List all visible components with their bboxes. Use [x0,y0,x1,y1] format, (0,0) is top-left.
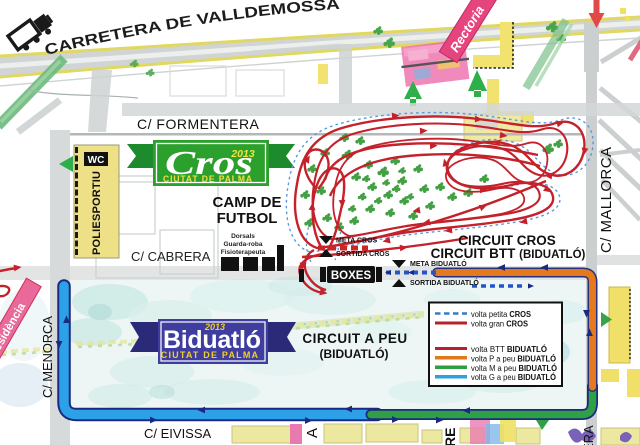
svg-text:WC: WC [88,155,105,166]
svg-text:SORTIDA BIDUATLÓ: SORTIDA BIDUATLÓ [410,278,479,287]
svg-text:C/ MALLORCA: C/ MALLORCA [598,147,615,253]
svg-text:META CROS: META CROS [336,238,378,245]
svg-text:RE: RE [442,428,458,445]
svg-text:C/ FORMENTERA: C/ FORMENTERA [137,116,260,132]
svg-text:volta G a peu BIDUATLÓ: volta G a peu BIDUATLÓ [471,373,556,382]
svg-text:CIUTAT DE PALMA: CIUTAT DE PALMA [161,350,260,360]
svg-text:FUTBOL: FUTBOL [217,210,278,227]
svg-text:Fisioterapeuta: Fisioterapeuta [221,249,266,256]
svg-text:C/ CABRERA: C/ CABRERA [131,249,211,264]
svg-text:CIRCUIT A PEU: CIRCUIT A PEU [302,331,407,346]
svg-text:POLIESPORTIU: POLIESPORTIU [91,171,103,255]
svg-text:volta M a peu BIDUATLÓ: volta M a peu BIDUATLÓ [471,364,557,373]
svg-text:(BIDUATLÓ): (BIDUATLÓ) [319,346,388,361]
svg-text:CIRCUIT BTT (BIDUATLÓ): CIRCUIT BTT (BIDUATLÓ) [431,246,586,261]
svg-text:C/ EIVISSA: C/ EIVISSA [144,426,212,441]
svg-text:volta BTT BIDUATLÓ: volta BTT BIDUATLÓ [471,345,547,354]
svg-text:A: A [304,428,321,438]
svg-text:CAMP DE: CAMP DE [213,194,282,211]
svg-text:META BIDUATLÓ: META BIDUATLÓ [410,259,467,268]
svg-text:SORTIDA CROS: SORTIDA CROS [336,251,390,258]
svg-text:volta gran CROS: volta gran CROS [471,320,529,329]
svg-text:Guarda-roba: Guarda-roba [223,241,262,248]
svg-text:ERA: ERA [581,425,596,445]
svg-text:Dorsals: Dorsals [231,233,255,240]
svg-text:volta P a peu BIDUATLÓ: volta P a peu BIDUATLÓ [471,354,556,363]
svg-text:CIUTAT DE PALMA: CIUTAT DE PALMA [163,174,253,185]
svg-text:BOXES: BOXES [331,270,372,282]
svg-text:volta petita CROS: volta petita CROS [471,310,532,319]
svg-text:C/ MENORCA: C/ MENORCA [40,316,55,398]
